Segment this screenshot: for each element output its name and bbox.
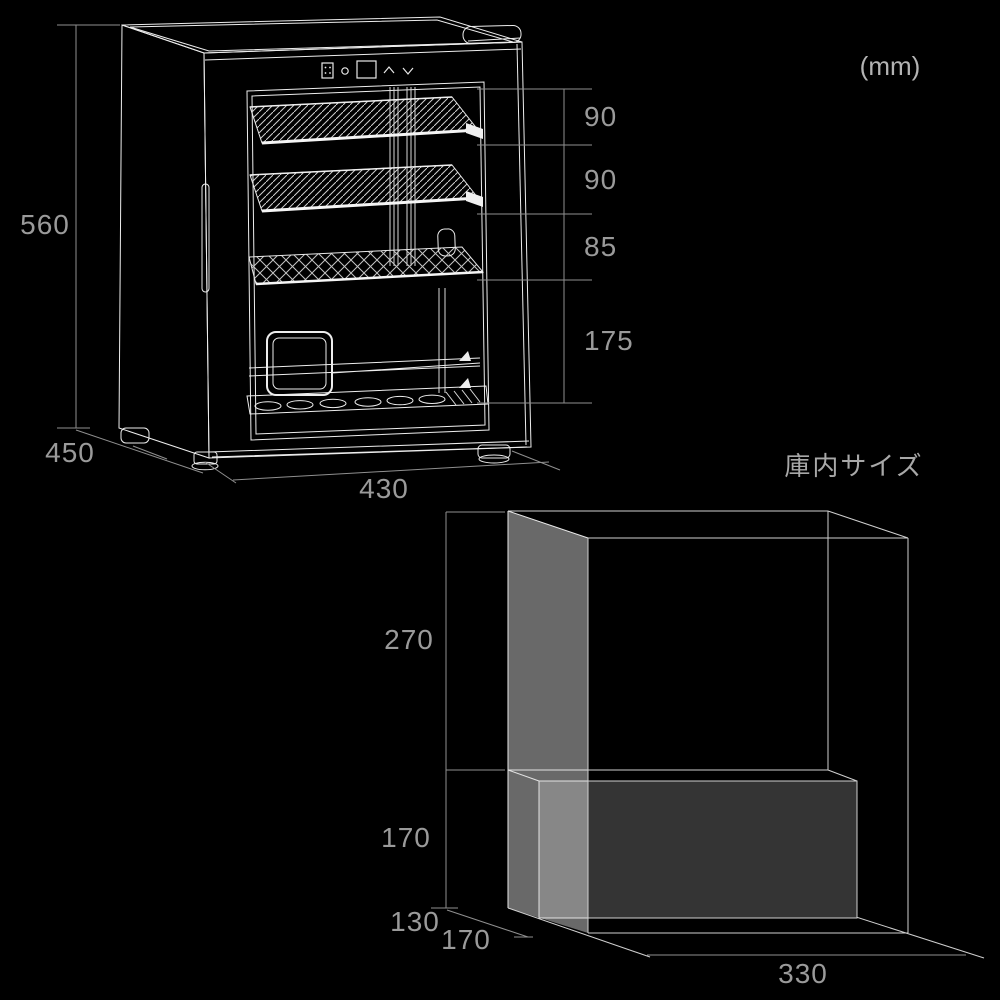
grid-dot (329, 67, 331, 69)
dimension-diagram-canvas: 560 450 430 90 90 85 175 (mm) 庫内サイズ (0, 0, 1000, 1000)
shelf-gap-4-label: 175 (584, 325, 634, 356)
grid-dot (325, 72, 327, 74)
interior-depth-back-label: 130 (390, 906, 440, 937)
interior-lower-height-label: 170 (381, 822, 431, 853)
grid-dot (329, 72, 331, 74)
depth-label: 450 (45, 437, 95, 468)
interior-upper-height-label: 270 (384, 624, 434, 655)
width-label: 430 (359, 473, 409, 504)
unit-label: (mm) (860, 51, 921, 81)
interior-depth-front-label: 170 (441, 924, 491, 955)
shelf-gap-2-label: 90 (584, 164, 617, 195)
interior-size-title: 庫内サイズ (784, 451, 923, 481)
grid-dot (325, 67, 327, 69)
shelf-gap-1-label: 90 (584, 101, 617, 132)
interior-width-label: 330 (778, 958, 828, 989)
interior-left-wall-panel (508, 511, 588, 933)
shelf-gap-3-label: 85 (584, 231, 617, 262)
spec-diagram-page: 560 450 430 90 90 85 175 (mm) 庫内サイズ (0, 0, 1000, 1000)
height-label: 560 (20, 209, 70, 240)
